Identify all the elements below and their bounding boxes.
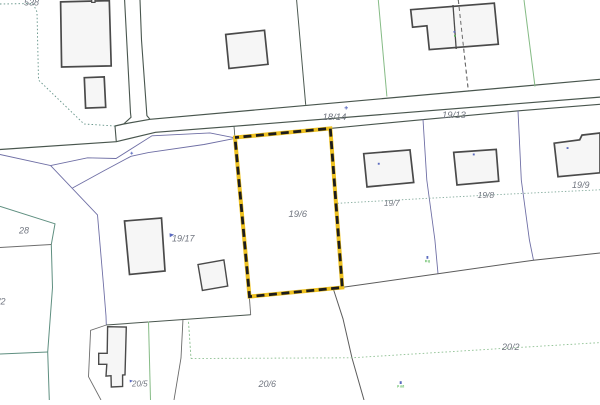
svg-text:19/8: 19/8 (478, 190, 495, 200)
svg-text:20/6: 20/6 (258, 379, 277, 389)
svg-text:19/6: 19/6 (289, 209, 308, 220)
svg-text:18/14: 18/14 (323, 112, 347, 123)
svg-text:19/13: 19/13 (442, 110, 466, 121)
svg-text:19/7: 19/7 (384, 199, 400, 208)
svg-text:28: 28 (18, 226, 29, 236)
svg-text:19/17: 19/17 (172, 234, 196, 244)
svg-text:19/9: 19/9 (572, 180, 590, 190)
svg-text:20/5: 20/5 (131, 380, 148, 389)
svg-text:/2: /2 (0, 297, 6, 307)
svg-text:538: 538 (24, 0, 39, 8)
svg-text:20/2: 20/2 (501, 342, 520, 352)
